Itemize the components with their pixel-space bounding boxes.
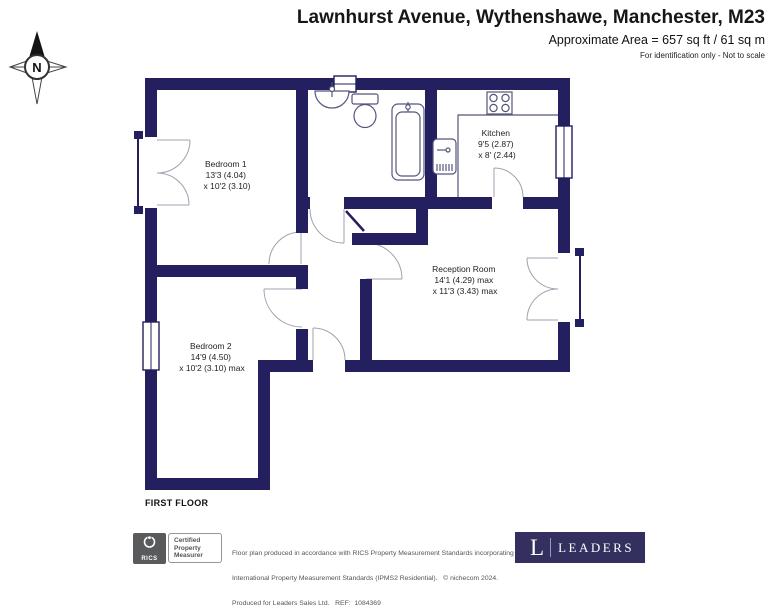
compass-icon: N (10, 31, 66, 104)
rics-swirl-icon (133, 533, 166, 550)
compass-north-label: N (32, 60, 41, 75)
bedroom2-window (143, 322, 159, 370)
kitchen-label: Kitchen 9'5 (2.87) x 8' (2.44) (478, 128, 516, 160)
kitchen-window (556, 126, 572, 178)
leaders-logo: L LEADERS (515, 532, 645, 563)
bathtub-icon (392, 102, 424, 180)
footer-line-1: Floor plan produced in accordance with R… (232, 550, 514, 558)
floor-plan: N (0, 0, 768, 576)
footer-line-3: Produced for Leaders Sales Ltd. REF: 108… (232, 600, 514, 608)
floor-name-label: FIRST FLOOR (145, 498, 208, 508)
room-labels: Bedroom 1 13'3 (4.04) x 10'2 (3.10) Bedr… (179, 128, 516, 373)
footer-disclaimer: Floor plan produced in accordance with R… (232, 534, 514, 616)
bedroom1-label: Bedroom 1 13'3 (4.04) x 10'2 (3.10) (204, 159, 251, 191)
hob-icon (487, 92, 512, 114)
bedroom2-label: Bedroom 2 14'9 (4.50) x 10'2 (3.10) max (179, 341, 245, 373)
kitchen-sink-icon (433, 139, 456, 174)
footer-line-2: International Property Measurement Stand… (232, 575, 514, 583)
reception-room-label: Reception Room 14'1 (4.29) max x 11'3 (3… (432, 264, 498, 296)
leaders-initial: L (515, 532, 544, 563)
french-door-frames (134, 131, 584, 327)
certified-property-measurer-badge: Certified Property Measurer (168, 533, 222, 563)
rics-org-label: RICS (133, 556, 166, 562)
toilet-icon (352, 94, 378, 128)
leaders-wordmark: LEADERS (558, 540, 634, 556)
bathroom-window (334, 76, 356, 92)
leaders-divider (550, 538, 551, 557)
bathroom-fixtures (315, 82, 424, 180)
rics-logo: RICS (133, 533, 166, 564)
